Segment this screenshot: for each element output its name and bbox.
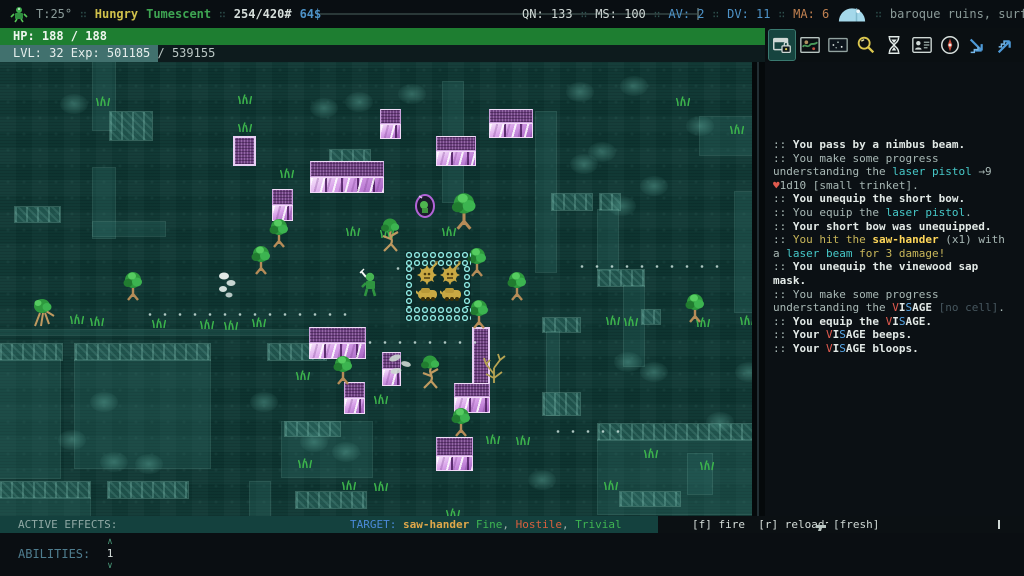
top-status-bar: T:25° ∷ Hungry Tumescent ∷ 254/420# 64$ …: [0, 0, 1024, 28]
grass-tuft: [298, 454, 312, 473]
grass-tuft: [238, 90, 252, 109]
shrub-fog: [398, 84, 426, 104]
money: 64$: [300, 7, 322, 21]
shrub-fog: [250, 392, 278, 412]
ruin-wall-remembered: [552, 194, 592, 210]
grass-tuft: [200, 315, 214, 334]
ruin-wall-remembered: [735, 192, 752, 312]
tree: [122, 270, 144, 306]
baroque-wall-face: [344, 398, 365, 414]
dried-plant: [478, 350, 510, 388]
temperature: T:25°: [36, 7, 72, 21]
grass-tuft: [90, 312, 104, 331]
separator: ∷: [80, 8, 87, 21]
shrub-fog: [566, 82, 594, 102]
debris: [388, 352, 418, 382]
ruin-wall-remembered: [75, 344, 210, 360]
baroque-wall-face: [489, 123, 533, 138]
abilities-label: ABILITIES:: [18, 547, 90, 561]
floor-dots: [580, 265, 720, 268]
shrub-fog: [614, 352, 642, 372]
separator: ∷: [581, 8, 588, 21]
saw-hander[interactable]: [416, 260, 438, 290]
log-line: :: Your VISAGE beeps.: [773, 328, 1016, 342]
ruin-wall-remembered: [543, 318, 580, 332]
target-quality: Fine: [469, 518, 502, 531]
baroque-wall: [436, 136, 476, 151]
shrub-fog: [735, 362, 752, 382]
tree: [506, 270, 528, 306]
pager-page: 1: [100, 548, 120, 560]
ruin-wall-remembered: [93, 222, 165, 236]
grass-tuft: [700, 456, 714, 475]
player-character[interactable]: [358, 268, 380, 302]
ruin-wall-remembered: [15, 207, 60, 222]
dodge-value: DV: 11: [727, 7, 770, 21]
grass-tuft: [238, 118, 252, 137]
shrub-fog: [706, 412, 734, 432]
shrub-fog: [620, 76, 648, 96]
grass-tuft: [606, 311, 620, 330]
tree: [418, 354, 444, 394]
shrub-fog: [570, 154, 598, 174]
look-magnifier-icon[interactable]: [853, 30, 879, 60]
status-left: T:25° ∷ Hungry Tumescent ∷ 254/420# 64$: [36, 7, 321, 21]
ruin-wall-remembered: [642, 310, 660, 324]
separator: ∷: [779, 8, 786, 21]
baroque-wall-face: [436, 456, 473, 471]
player-avatar-icon: [10, 5, 28, 23]
baroque-wall: [310, 161, 384, 177]
move-speed: MS: 100: [595, 7, 646, 21]
baroque-wall-face: [310, 177, 384, 193]
ruin-wall-remembered: [598, 210, 618, 270]
pin-sidebar-icon[interactable]: [769, 30, 795, 60]
separator: ∷: [875, 8, 882, 21]
ruin-wall-remembered: [110, 112, 152, 140]
log-line: :: You equip the VISAGE.: [773, 315, 1016, 329]
character-sheet-icon[interactable]: [909, 30, 935, 60]
exp-next: / 539155: [150, 46, 215, 60]
tree: [450, 406, 472, 442]
baroque-wall-face: [436, 151, 476, 166]
mental-armor: MA: 6: [793, 7, 829, 21]
grass-tuft: [252, 313, 266, 332]
baroque-wall: [233, 136, 256, 166]
grass-tuft: [676, 92, 690, 111]
shrub-fog: [100, 452, 128, 472]
grass-tuft: [96, 92, 110, 111]
log-line: :: You unequip the vinewood sap mask.: [773, 260, 1016, 287]
grass-tuft: [604, 476, 618, 495]
game-map[interactable]: [0, 62, 752, 516]
floor-dots: [148, 313, 348, 316]
ruin-wall-remembered: [620, 492, 680, 506]
baroque-wall: [309, 327, 366, 343]
grass-tuft: [730, 120, 744, 139]
target-difficulty: Trivial: [575, 518, 621, 531]
shrub-fog: [310, 98, 338, 118]
shrub-fog: [332, 442, 360, 462]
walking-tree: [30, 298, 56, 332]
ruin-wall-remembered: [536, 112, 556, 272]
rest-hourglass-icon[interactable]: [881, 30, 907, 60]
separator: ∷: [713, 8, 720, 21]
tree: [378, 217, 404, 257]
shrub-fog: [90, 392, 118, 412]
grass-tuft: [152, 314, 166, 333]
ruin-wall-remembered: [250, 482, 270, 516]
shrub-fog: [58, 430, 86, 450]
quickness: QN: 133: [522, 7, 573, 21]
creature-egg[interactable]: [413, 192, 437, 223]
message-log[interactable]: :: You pass by a nimbus beam.:: You make…: [765, 62, 1024, 516]
log-line: :: You make some progress understanding …: [773, 152, 1016, 193]
hp-bar: HP: 188 / 188: [0, 28, 765, 45]
tree: [268, 217, 290, 253]
ruin-wall-remembered: [108, 482, 188, 498]
carry-weight: 254/420#: [234, 7, 292, 21]
saw-hander-tank[interactable]: [440, 288, 464, 307]
tree: [468, 298, 490, 334]
ammo-status: [fresh]: [833, 516, 879, 533]
grass-tuft: [374, 390, 388, 409]
target-relation: Hostile: [516, 518, 562, 531]
active-effects-label: ACTIVE EFFECTS:: [18, 516, 117, 533]
stairs-up-icon[interactable]: [993, 30, 1019, 60]
grass-tuft: [342, 476, 356, 495]
level-exp: LVL: 32 Exp: 501185: [13, 46, 150, 60]
separator: ∷: [654, 8, 661, 21]
status-right: QN: 133 ∷ MS: 100 ∷ AV: 2 ∷ DV: 11 ∷ MA:…: [522, 5, 1024, 23]
shrub-fog: [60, 94, 88, 114]
grass-tuft: [296, 366, 310, 385]
ruin-wall-remembered: [0, 482, 90, 498]
baroque-wall-face: [380, 124, 401, 139]
ruin-wall-remembered: [75, 360, 210, 468]
game-window: T:25° ∷ Hungry Tumescent ∷ 254/420# 64$ …: [0, 0, 1024, 576]
grass-tuft: [280, 164, 294, 183]
grass-tuft: [486, 430, 500, 449]
target-label: TARGET:: [350, 518, 403, 531]
stairs-down-icon[interactable]: [965, 30, 991, 60]
log-scrollbar[interactable]: [752, 62, 765, 516]
shrub-fog: [135, 454, 163, 474]
log-line: :: You unequip the short bow.: [773, 192, 1016, 206]
saw-hander-tank[interactable]: [416, 288, 440, 307]
grass-tuft: [644, 444, 658, 463]
hunger-status: Hungry: [95, 7, 138, 21]
grass-tuft: [70, 310, 84, 329]
ruin-wall-remembered: [0, 360, 60, 478]
target-name: saw-hander: [403, 518, 469, 531]
log-line: :: You hit the saw-hander (x1) with a la…: [773, 233, 1016, 260]
pager-down-icon[interactable]: ∨: [100, 560, 120, 572]
grass-tuft: [374, 477, 388, 496]
toolbar-icon-strip: [765, 28, 1024, 62]
grass-tuft: [516, 431, 530, 450]
gas-cloud: [216, 270, 240, 304]
ruin-wall-remembered: [598, 270, 644, 286]
ruin-wall-remembered: [543, 393, 580, 415]
force-field: [405, 251, 471, 321]
log-line: :: You equip the laser pistol.: [773, 206, 1016, 220]
grass-tuft: [446, 504, 460, 516]
shrub-fog: [640, 176, 668, 196]
floor-dots: [556, 430, 626, 433]
abilities-bar: ABILITIES: ∧ 1 ∨ Force Wall <1>Bask <2>K…: [0, 533, 1024, 576]
tree: [450, 190, 478, 236]
target-readout: TARGET: saw-hander Fine, Hostile, Trivia…: [350, 516, 622, 533]
grass-tuft: [624, 312, 638, 331]
compass-travel-icon[interactable]: [937, 30, 963, 60]
baroque-wall: [380, 109, 401, 124]
location-label: baroque ruins, surface: [890, 7, 1024, 21]
log-line: :: Your short bow was unequipped.: [773, 220, 1016, 234]
moon-dome-icon: [837, 5, 867, 23]
log-line: :: Your VISAGE bloops.: [773, 342, 1016, 356]
world-map-icon[interactable]: [797, 30, 823, 60]
shrub-fog: [300, 432, 328, 452]
ruin-wall-remembered: [0, 344, 62, 360]
shrub-fog: [528, 470, 556, 490]
armor-value: AV: 2: [668, 7, 704, 21]
fire-reload-hints[interactable]: [f] fire [r] reload: [692, 516, 824, 533]
shrub-fog: [608, 196, 636, 216]
baroque-wall: [272, 189, 293, 205]
minimap-icon[interactable]: [825, 30, 851, 60]
target-bar: ACTIVE EFFECTS: TARGET: saw-hander Fine,…: [0, 516, 1024, 533]
grass-tuft: [224, 316, 238, 335]
floor-dots: [368, 341, 478, 344]
bar-tick: [998, 520, 1000, 529]
ability-pager[interactable]: ∧ 1 ∨: [100, 536, 120, 572]
baroque-wall: [489, 109, 533, 123]
shrub-fog: [686, 116, 714, 136]
ruin-wall-remembered: [0, 498, 90, 516]
tree: [684, 292, 706, 328]
shrub-fog: [640, 362, 668, 382]
grass-tuft: [346, 222, 360, 241]
saw-hander[interactable]: [439, 260, 461, 290]
grass-tuft: [740, 311, 752, 330]
shrub-fog: [345, 92, 373, 112]
log-line: :: You make some progress understanding …: [773, 288, 1016, 315]
log-line: :: You pass by a nimbus beam.: [773, 138, 1016, 152]
tree: [332, 354, 354, 390]
xp-bar: LVL: 32 Exp: 501185 / 539155: [0, 45, 765, 62]
separator: ∷: [219, 8, 226, 21]
body-status: Tumescent: [146, 7, 211, 21]
